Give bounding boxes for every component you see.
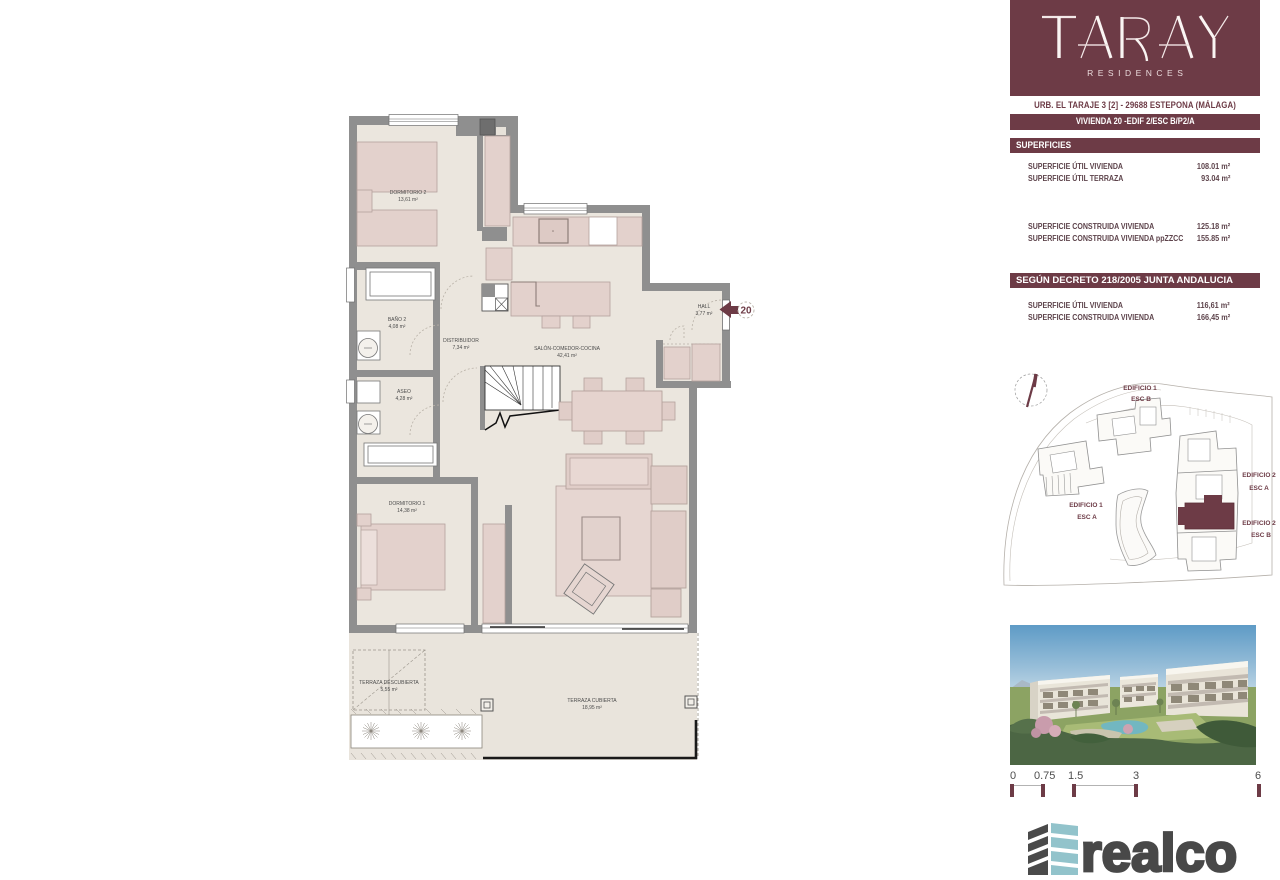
svg-text:1.5: 1.5 <box>1068 770 1083 782</box>
svg-text:0.75: 0.75 <box>1034 770 1055 782</box>
svg-text:realco: realco <box>1081 824 1237 875</box>
svg-text:ASEO: ASEO <box>397 389 411 395</box>
svg-text:3,77 m²: 3,77 m² <box>696 311 713 317</box>
svg-text:ESC B: ESC B <box>1251 532 1271 539</box>
svg-text:ESC A: ESC A <box>1249 485 1269 492</box>
svg-text:13,61 m²: 13,61 m² <box>398 197 418 203</box>
svg-text:BAÑO 2: BAÑO 2 <box>388 316 407 323</box>
svg-text:ESC A: ESC A <box>1077 514 1097 521</box>
svg-text:14,38 m²: 14,38 m² <box>397 508 417 514</box>
svg-text:EDIFICIO 1: EDIFICIO 1 <box>1123 385 1157 392</box>
svg-text:SALÓN-COMEDOR-COCINA: SALÓN-COMEDOR-COCINA <box>534 345 601 352</box>
svg-text:18,95 m²: 18,95 m² <box>582 705 602 711</box>
svg-text:EDIFICIO 1: EDIFICIO 1 <box>1069 502 1103 509</box>
svg-text:4,08 m²: 4,08 m² <box>389 324 406 330</box>
svg-text:0: 0 <box>1010 770 1016 782</box>
svg-text:7,34 m²: 7,34 m² <box>453 345 470 351</box>
svg-text:42,41 m²: 42,41 m² <box>557 353 577 359</box>
svg-text:DORMITORIO 2: DORMITORIO 2 <box>390 190 427 196</box>
svg-text:DISTRIBUIDOR: DISTRIBUIDOR <box>443 338 479 344</box>
svg-text:20: 20 <box>740 306 752 317</box>
svg-text:TERRAZA DESCUBIERTA: TERRAZA DESCUBIERTA <box>359 680 419 686</box>
svg-text:4,28 m²: 4,28 m² <box>396 396 413 402</box>
svg-text:DORMITORIO 1: DORMITORIO 1 <box>389 501 426 507</box>
svg-text:3: 3 <box>1133 770 1139 782</box>
svg-text:EDIFICIO 2: EDIFICIO 2 <box>1242 472 1276 479</box>
svg-text:TERRAZA CUBIERTA: TERRAZA CUBIERTA <box>567 698 617 704</box>
svg-text:ESC B: ESC B <box>1131 396 1151 403</box>
svg-text:HALL: HALL <box>698 304 711 310</box>
svg-text:5,55 m²: 5,55 m² <box>381 687 398 693</box>
svg-text:6: 6 <box>1255 770 1261 782</box>
svg-text:EDIFICIO 2: EDIFICIO 2 <box>1242 520 1276 527</box>
